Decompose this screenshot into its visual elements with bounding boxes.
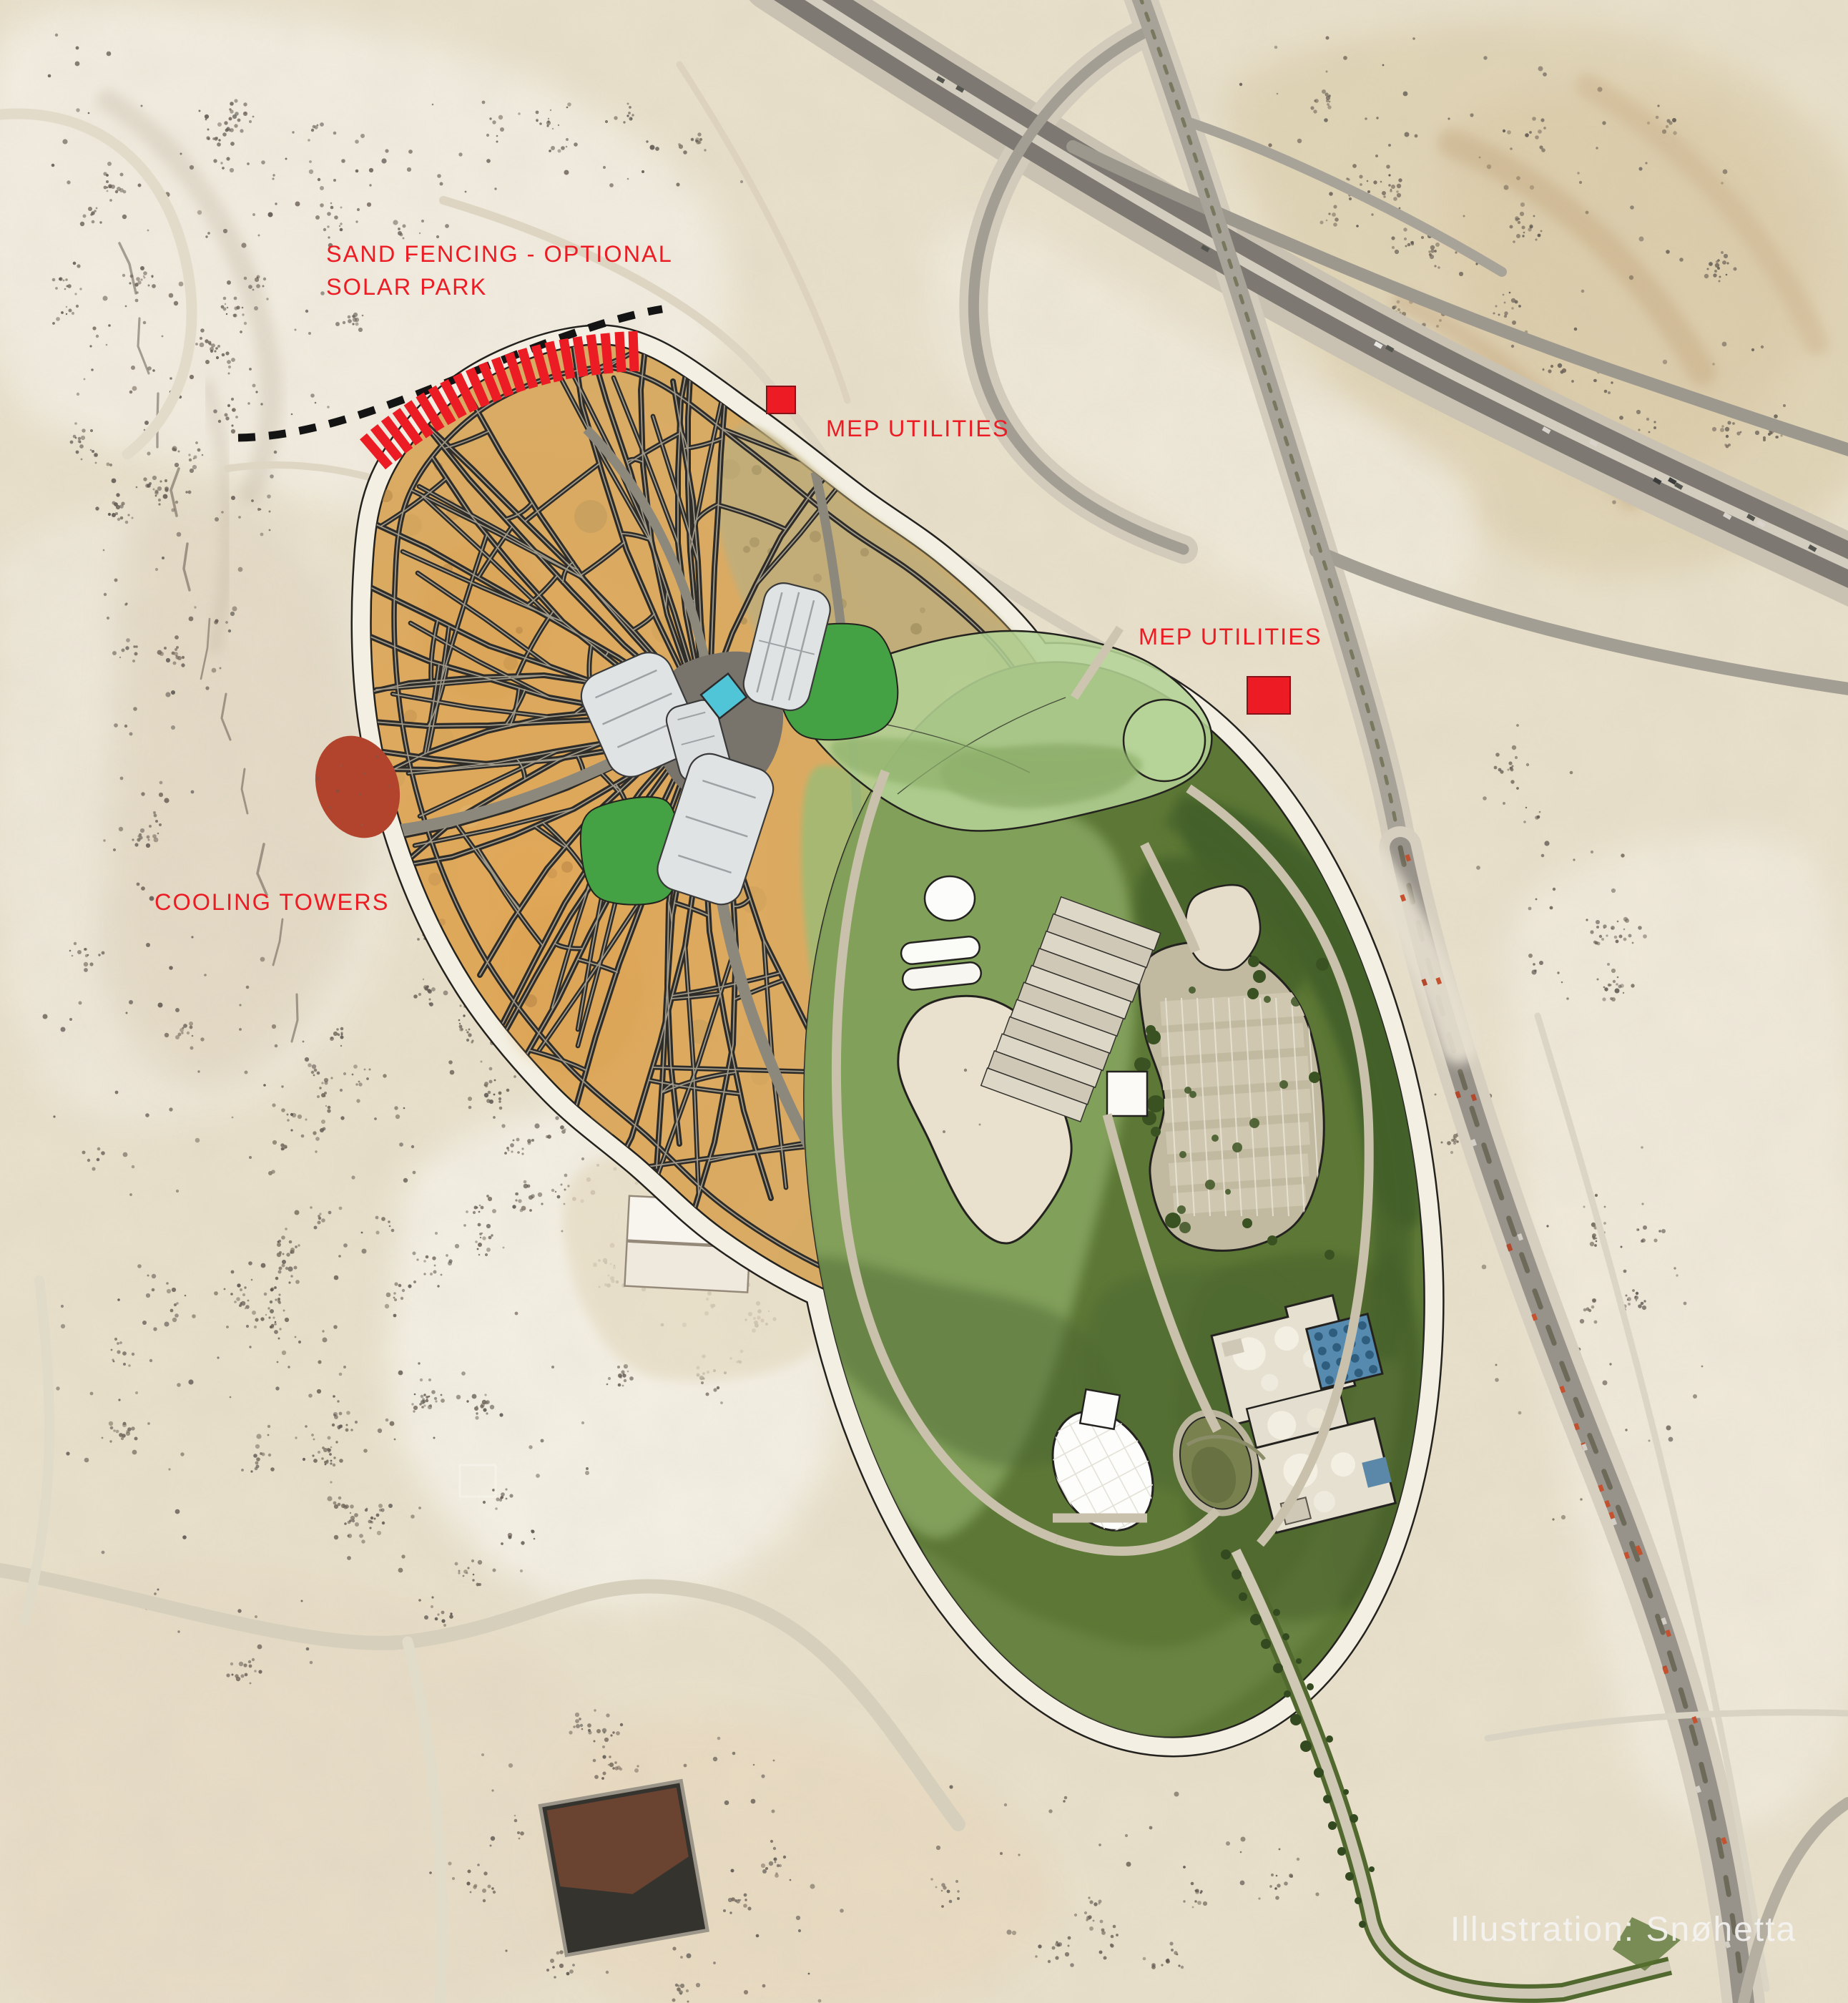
svg-text:SAND FENCING - OPTIONAL: SAND FENCING - OPTIONAL [326, 241, 673, 267]
svg-text:MEP UTILITIES: MEP UTILITIES [826, 416, 1010, 441]
svg-text:COOLING TOWERS: COOLING TOWERS [154, 889, 389, 915]
svg-text:MEP UTILITIES: MEP UTILITIES [1139, 624, 1322, 650]
svg-text:Illustration: Snøhetta: Illustration: Snøhetta [1450, 1911, 1797, 1949]
svg-text:SOLAR PARK: SOLAR PARK [326, 274, 487, 300]
